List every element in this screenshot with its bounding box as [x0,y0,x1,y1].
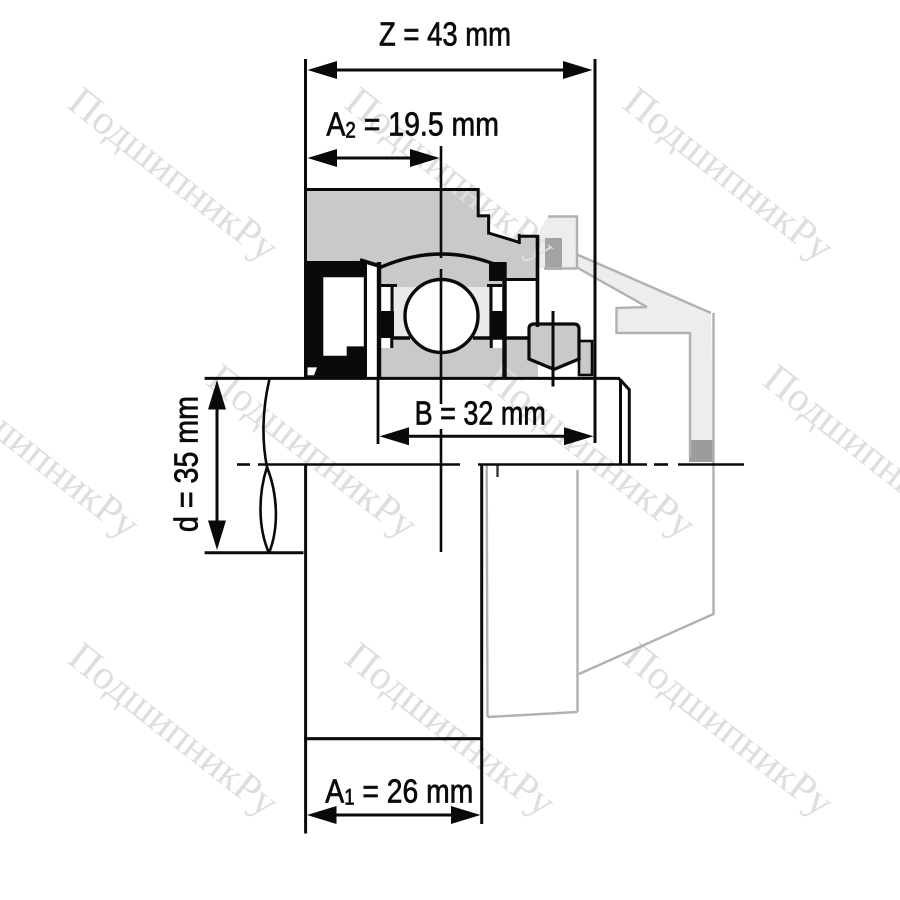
svg-text:Z = 43 mm: Z = 43 mm [379,17,511,54]
svg-text:d = 35 mm: d = 35 mm [169,396,206,532]
svg-text:B = 32 mm: B = 32 mm [415,396,546,433]
